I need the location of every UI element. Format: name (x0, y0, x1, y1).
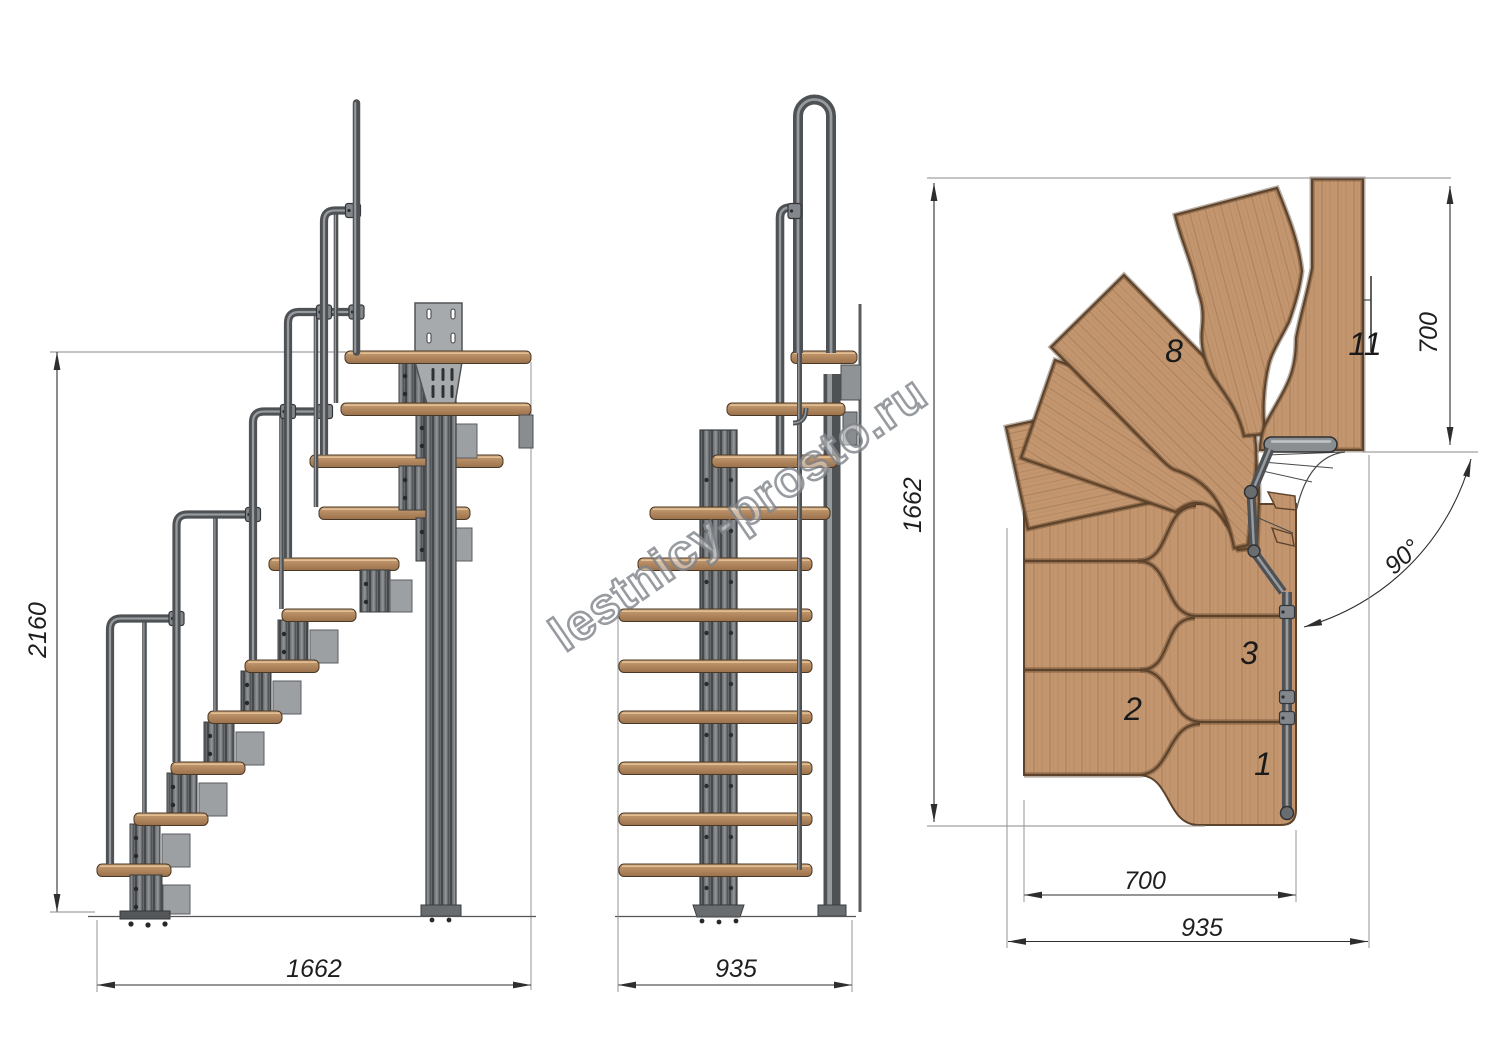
svg-text:935: 935 (715, 955, 757, 983)
svg-text:2160: 2160 (24, 602, 52, 659)
svg-text:8: 8 (1165, 333, 1183, 369)
svg-text:1662: 1662 (286, 955, 342, 983)
svg-text:11: 11 (1348, 326, 1381, 362)
svg-text:1: 1 (1254, 746, 1272, 782)
svg-text:700: 700 (1124, 867, 1166, 895)
svg-text:1662: 1662 (899, 477, 927, 533)
svg-text:2: 2 (1123, 691, 1142, 727)
svg-text:935: 935 (1181, 914, 1223, 942)
svg-text:90°: 90° (1379, 534, 1426, 580)
svg-text:700: 700 (1415, 312, 1443, 354)
svg-text:3: 3 (1240, 635, 1258, 671)
